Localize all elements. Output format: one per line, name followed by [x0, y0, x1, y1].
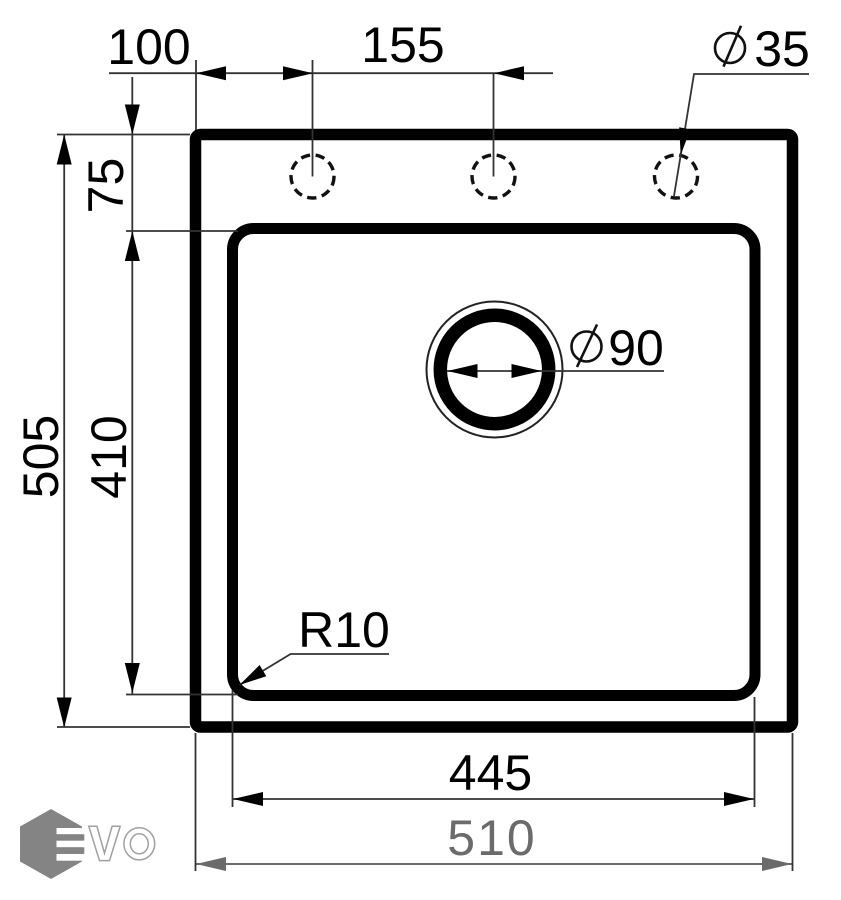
svg-text:75: 75: [78, 158, 134, 214]
svg-text:35: 35: [754, 21, 810, 77]
svg-text:90: 90: [608, 320, 664, 376]
svg-text:100: 100: [107, 19, 190, 75]
svg-text:510: 510: [447, 810, 536, 866]
svg-text:155: 155: [361, 17, 444, 73]
svg-text:410: 410: [81, 415, 137, 498]
svg-text:445: 445: [449, 745, 532, 801]
svg-text:505: 505: [13, 415, 69, 498]
svg-text:R10: R10: [298, 602, 390, 658]
